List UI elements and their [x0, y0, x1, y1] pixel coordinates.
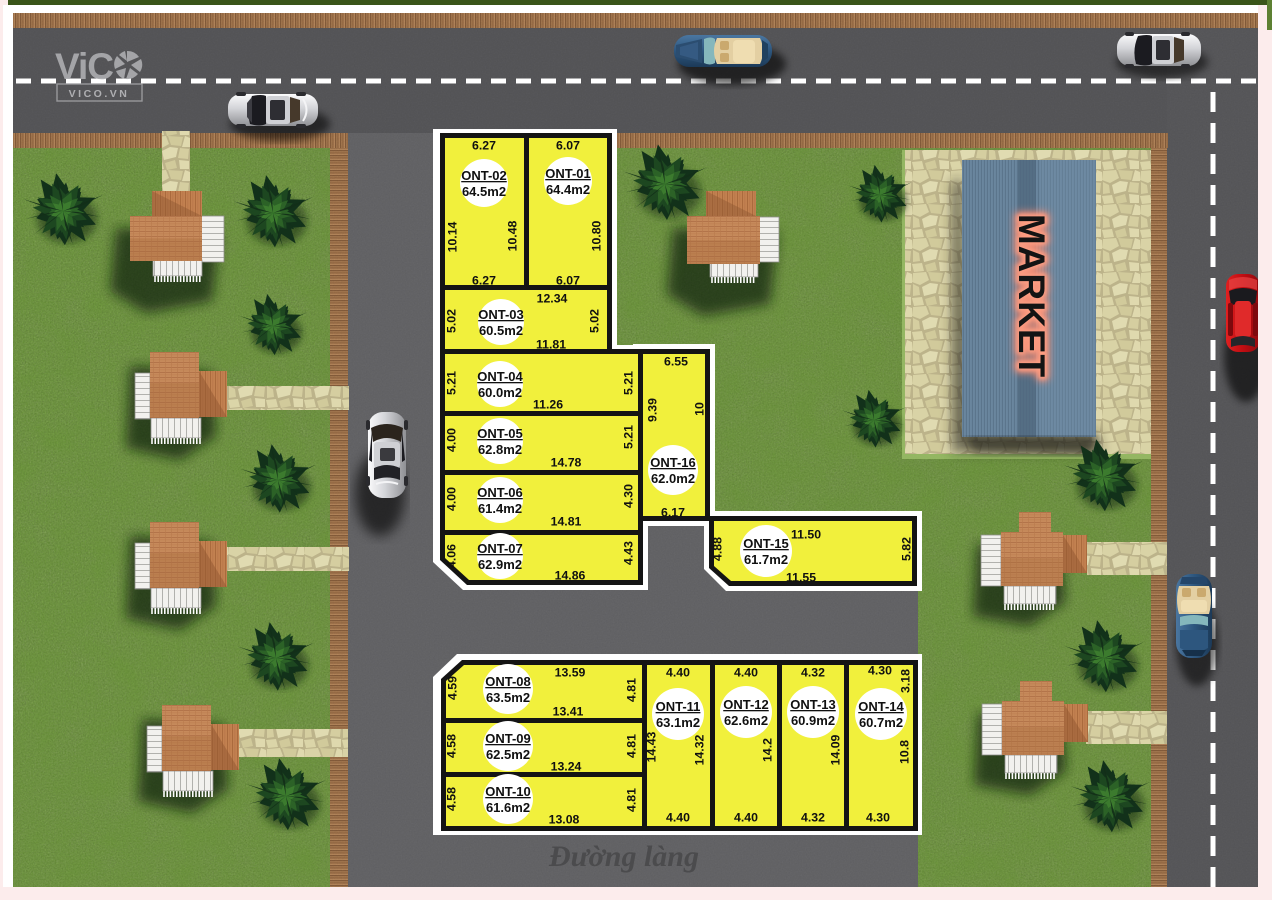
svg-text:10.80: 10.80 [589, 220, 603, 251]
svg-text:60.5m2: 60.5m2 [479, 323, 523, 338]
svg-text:5.02: 5.02 [587, 309, 601, 333]
svg-text:14.32: 14.32 [692, 734, 706, 765]
svg-text:ONT-10: ONT-10 [485, 784, 531, 799]
svg-text:60.0m2: 60.0m2 [478, 385, 522, 400]
svg-text:ONT-01: ONT-01 [545, 166, 591, 181]
svg-text:ONT-05: ONT-05 [477, 426, 523, 441]
svg-text:10.8: 10.8 [897, 740, 911, 764]
svg-text:12.34: 12.34 [537, 291, 568, 305]
svg-text:Đường làng: Đường làng [548, 840, 699, 873]
svg-text:4.00: 4.00 [444, 428, 458, 452]
svg-text:ONT-12: ONT-12 [723, 697, 769, 712]
svg-text:62.6m2: 62.6m2 [724, 713, 768, 728]
svg-text:61.4m2: 61.4m2 [478, 501, 522, 516]
svg-text:63.1m2: 63.1m2 [656, 715, 700, 730]
svg-text:ONT-08: ONT-08 [485, 674, 531, 689]
svg-text:6.27: 6.27 [472, 138, 496, 152]
svg-text:MARKET: MARKET [1011, 214, 1052, 378]
svg-text:ONT-11: ONT-11 [656, 699, 701, 714]
svg-text:13.41: 13.41 [553, 704, 584, 718]
svg-text:4.32: 4.32 [801, 810, 825, 824]
svg-text:ONT-06: ONT-06 [477, 485, 523, 500]
svg-text:ONT-03: ONT-03 [478, 307, 524, 322]
svg-text:5.21: 5.21 [621, 371, 635, 395]
svg-text:14.2: 14.2 [760, 738, 774, 762]
svg-text:64.5m2: 64.5m2 [462, 184, 506, 199]
svg-text:6.55: 6.55 [664, 354, 688, 368]
svg-text:6.07: 6.07 [556, 138, 580, 152]
svg-text:13.59: 13.59 [555, 665, 586, 679]
svg-text:ONT-07: ONT-07 [477, 541, 523, 556]
svg-text:62.0m2: 62.0m2 [651, 471, 695, 486]
svg-text:4.30: 4.30 [868, 663, 892, 677]
svg-text:61.7m2: 61.7m2 [744, 552, 788, 567]
svg-text:4.81: 4.81 [624, 788, 638, 812]
svg-text:61.6m2: 61.6m2 [486, 800, 530, 815]
svg-text:4.00: 4.00 [444, 487, 458, 511]
svg-text:62.9m2: 62.9m2 [478, 557, 522, 572]
svg-text:4.40: 4.40 [734, 810, 758, 824]
svg-text:ONT-14: ONT-14 [858, 699, 904, 714]
svg-text:13.08: 13.08 [549, 812, 580, 826]
svg-text:11.50: 11.50 [791, 527, 821, 541]
svg-text:62.5m2: 62.5m2 [486, 747, 530, 762]
svg-text:60.9m2: 60.9m2 [791, 713, 835, 728]
svg-text:ONT-04: ONT-04 [477, 369, 523, 384]
svg-text:4.59: 4.59 [445, 676, 459, 700]
svg-text:11.55: 11.55 [786, 570, 816, 584]
svg-text:ONT-02: ONT-02 [461, 168, 507, 183]
svg-text:11.26: 11.26 [533, 397, 563, 411]
svg-text:14.81: 14.81 [551, 514, 582, 528]
svg-text:10.14: 10.14 [445, 221, 459, 252]
svg-text:ONT-13: ONT-13 [790, 697, 836, 712]
svg-text:4.58: 4.58 [444, 734, 458, 758]
svg-text:4.06: 4.06 [444, 544, 458, 568]
svg-text:5.02: 5.02 [444, 309, 458, 333]
svg-text:4.30: 4.30 [621, 484, 635, 508]
svg-text:14.86: 14.86 [555, 568, 586, 582]
svg-text:3.18: 3.18 [898, 669, 912, 693]
svg-text:VICO.VN: VICO.VN [69, 88, 130, 100]
svg-text:6.07: 6.07 [556, 273, 580, 287]
svg-text:ViC: ViC [55, 46, 113, 87]
svg-text:5.82: 5.82 [899, 537, 913, 561]
svg-text:62.8m2: 62.8m2 [478, 442, 522, 457]
svg-text:4.40: 4.40 [666, 810, 690, 824]
svg-text:4.43: 4.43 [621, 541, 635, 565]
svg-text:64.4m2: 64.4m2 [546, 182, 590, 197]
svg-text:10.48: 10.48 [505, 220, 519, 251]
svg-text:5.21: 5.21 [444, 371, 458, 395]
svg-text:ONT-16: ONT-16 [650, 455, 696, 470]
svg-text:4.40: 4.40 [666, 665, 690, 679]
svg-text:4.40: 4.40 [734, 665, 758, 679]
svg-text:5.21: 5.21 [621, 425, 635, 449]
svg-text:4.58: 4.58 [444, 787, 458, 811]
svg-text:14.09: 14.09 [828, 734, 842, 765]
svg-text:4.32: 4.32 [801, 665, 825, 679]
svg-text:14.78: 14.78 [551, 455, 582, 469]
svg-text:10: 10 [692, 402, 706, 416]
svg-text:4.88: 4.88 [710, 537, 724, 561]
svg-text:6.27: 6.27 [472, 273, 496, 287]
svg-text:ONT-09: ONT-09 [485, 731, 531, 746]
svg-text:4.81: 4.81 [624, 678, 638, 702]
svg-text:4.81: 4.81 [624, 734, 638, 758]
svg-text:11.81: 11.81 [536, 337, 566, 351]
svg-text:13.24: 13.24 [551, 759, 582, 773]
svg-text:ONT-15: ONT-15 [743, 536, 789, 551]
svg-text:14.43: 14.43 [644, 731, 658, 762]
svg-text:60.7m2: 60.7m2 [859, 715, 903, 730]
svg-text:63.5m2: 63.5m2 [486, 690, 530, 705]
svg-text:4.30: 4.30 [866, 810, 890, 824]
svg-text:9.39: 9.39 [645, 398, 659, 422]
svg-text:6.17: 6.17 [661, 505, 685, 519]
